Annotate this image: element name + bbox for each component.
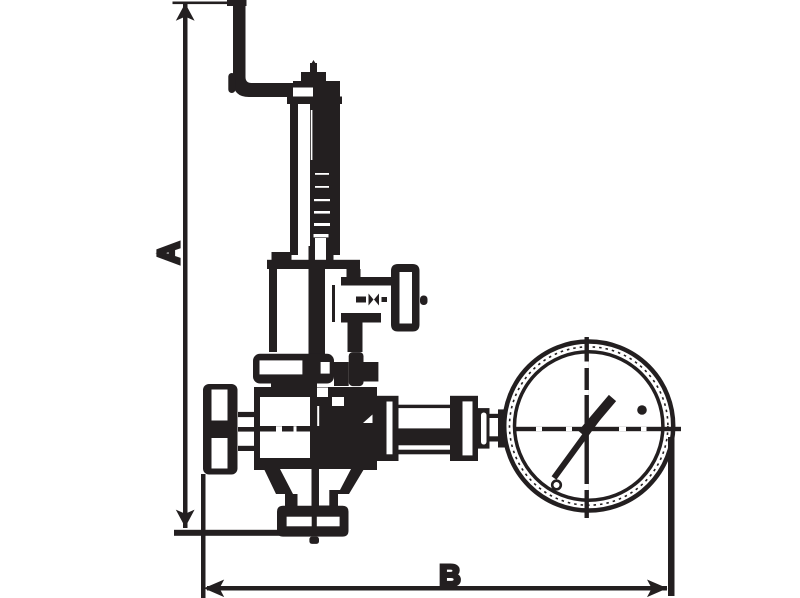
svg-text:B: B [439,560,461,593]
svg-text:A: A [151,242,186,264]
